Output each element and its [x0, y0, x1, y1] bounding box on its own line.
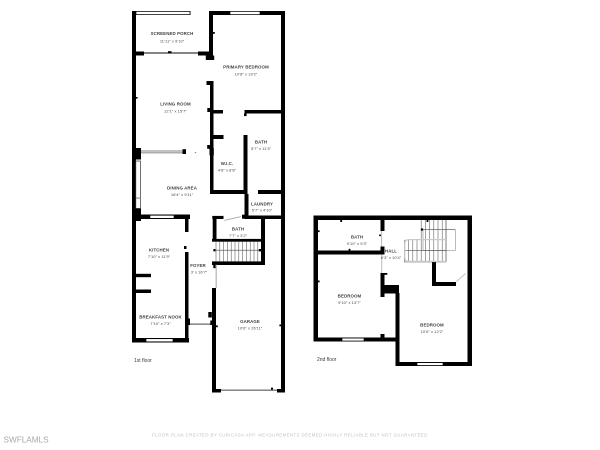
svg-text:7’10” x 11’9”: 7’10” x 11’9” — [148, 254, 171, 259]
svg-text:9’10” x 5’3”: 9’10” x 5’3” — [347, 241, 368, 246]
svg-text:5’7” x 4’10”: 5’7” x 4’10” — [252, 208, 273, 213]
svg-text:12’1” x 15’7”: 12’1” x 15’7” — [164, 109, 187, 114]
svg-text:10’8” x 19’2”: 10’8” x 19’2” — [235, 72, 258, 77]
svg-text:KITCHEN: KITCHEN — [149, 248, 169, 253]
svg-text:1st floor: 1st floor — [134, 358, 152, 364]
svg-text:7’10” x 7’3”: 7’10” x 7’3” — [150, 321, 171, 326]
svg-text:BEDROOM: BEDROOM — [338, 294, 362, 299]
svg-text:10’6” x 12’2”: 10’6” x 12’2” — [421, 329, 444, 334]
svg-text:FOYER: FOYER — [190, 263, 206, 268]
svg-text:BEDROOM: BEDROOM — [420, 323, 444, 328]
svg-text:PRIMARY BEDROOM: PRIMARY BEDROOM — [223, 65, 269, 70]
svg-text:BATH: BATH — [351, 235, 363, 240]
svg-text:SCREENED PORCH: SCREENED PORCH — [151, 31, 194, 36]
svg-text:7’7” x 3’2”: 7’7” x 3’2” — [229, 233, 248, 238]
svg-text:3’ x 16’7”: 3’ x 16’7” — [191, 270, 208, 275]
svg-text:FLOOR PLAN CREATED BY CUBICASA: FLOOR PLAN CREATED BY CUBICASA APP. MEAS… — [152, 433, 428, 438]
svg-text:BATH: BATH — [255, 140, 267, 145]
svg-text:5’7” x 11’3”: 5’7” x 11’3” — [251, 146, 272, 151]
svg-text:HALL: HALL — [385, 249, 397, 254]
svg-text:4’8” x 8’8”: 4’8” x 8’8” — [218, 168, 237, 173]
svg-text:6’3” x 10’4”: 6’3” x 10’4” — [381, 255, 402, 260]
svg-text:LIVING ROOM: LIVING ROOM — [160, 102, 191, 107]
svg-text:W.I.C.: W.I.C. — [221, 161, 234, 166]
svg-text:LAUNDRY: LAUNDRY — [251, 202, 273, 207]
svg-text:16’4” x 9’11”: 16’4” x 9’11” — [171, 192, 194, 197]
svg-text:10’6” x 26’11”: 10’6” x 26’11” — [238, 326, 263, 331]
svg-text:11’11” x 9’10”: 11’11” x 9’10” — [160, 39, 185, 44]
svg-text:2nd floor: 2nd floor — [317, 357, 337, 363]
svg-text:GARAGE: GARAGE — [240, 319, 260, 324]
svg-text:9’10” x 13’7”: 9’10” x 13’7” — [338, 300, 361, 305]
svg-text:DINING AREA: DINING AREA — [167, 186, 198, 191]
svg-text:SWFLAMLS: SWFLAMLS — [4, 436, 50, 445]
svg-text:BATH: BATH — [232, 227, 244, 232]
svg-text:BREAKFAST NOOK: BREAKFAST NOOK — [139, 315, 182, 320]
